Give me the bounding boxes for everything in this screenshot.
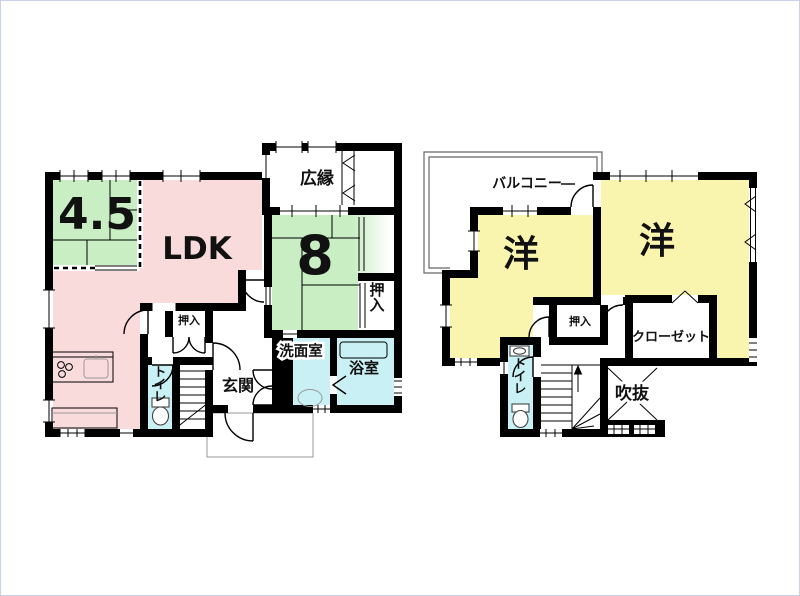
room-label-oshiire-center: 押入 xyxy=(178,313,200,327)
room-label-4-5: 4.5 xyxy=(58,189,136,240)
room-label-balcony: バルコニー xyxy=(492,176,562,192)
room-label-genkan: 玄関 xyxy=(222,376,254,395)
room-label-toire-1f: トイレ xyxy=(154,364,167,404)
room-label-8: 8 xyxy=(296,224,334,287)
room-label-ldk: LDK xyxy=(162,231,232,267)
room-label-fukinuke: 吹抜 xyxy=(615,383,650,404)
room-label-yokushitsu: 浴室 xyxy=(349,359,379,377)
room-label-western-right: 洋 xyxy=(639,221,675,262)
room-label-toire-2f: トイレ xyxy=(514,356,527,396)
room-label-hiroen: 広縁 xyxy=(300,168,334,189)
floorplan-image: 4.5 LDK 広縁 8 押入 押入 洗面室 浴室 玄関 トイレ xyxy=(0,0,800,596)
room-label-western-left: 洋 xyxy=(503,234,539,275)
room-label-senmenshitsu: 洗面室 xyxy=(279,342,323,360)
room-label-oshiire-2f: 押入 xyxy=(569,314,591,328)
tatami-8-fade xyxy=(352,215,390,273)
room-label-oshiire-east: 押入 xyxy=(369,281,384,314)
room-label-closet: クローゼット xyxy=(632,329,710,345)
